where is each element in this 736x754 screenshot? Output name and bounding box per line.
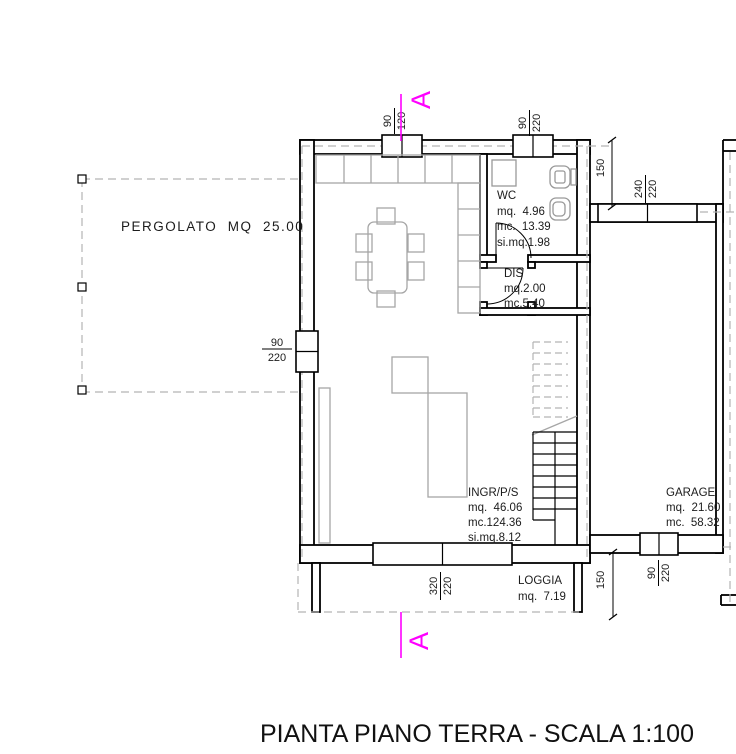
pergola-post [78,175,86,183]
section-line-AA: A A [401,91,436,658]
garage-label-block: GARAGE mq. 21.60 mc. 58.32 [666,487,720,529]
shower-sink [492,160,516,186]
stairs-lower-flight [533,432,577,545]
num: 320 [428,577,440,595]
sofa-corner [392,357,428,393]
svg-text:mq.2.00: mq.2.00 [504,283,546,295]
svg-text:mq. 46.06: mq. 46.06 [468,502,522,514]
svg-text:GARAGE: GARAGE [666,487,716,499]
num: 90 [271,337,283,349]
chair [356,262,372,280]
pergolato-outline [78,175,300,394]
staircase [532,342,577,545]
num: 240 [633,180,645,198]
den: 220 [647,180,659,198]
shelf-unit [319,388,330,543]
label-240-220: 240 220 [633,175,659,203]
dim-150-top [608,137,616,210]
svg-text:mc. 58.32: mc. 58.32 [666,517,720,529]
pergola-post [78,283,86,291]
num: 90 [382,115,394,127]
label-dim-150-bottom: 150 [595,571,607,589]
garage-back-door-90x220 [640,533,678,555]
svg-text:WC: WC [497,190,516,202]
kitchen-units [316,155,480,313]
svg-text:150: 150 [595,159,607,177]
toilet [550,166,576,188]
opening-labels: 90 120 90 220 90 220 320 220 240 220 90 … [262,108,672,600]
sofa-body [428,393,467,497]
svg-text:mq. 4.96: mq. 4.96 [497,206,545,218]
loggia-label-block: LOGGIA mq. 7.19 [518,575,566,603]
svg-text:mq. 21.60: mq. 21.60 [666,502,720,514]
dis-label-block: DIS mq.2.00 mc.5.40 [504,268,546,310]
svg-text:si.mq.8.12: si.mq.8.12 [468,532,521,544]
label-90-220-top: 90 220 [517,110,543,136]
svg-text:mc. 13.39: mc. 13.39 [497,221,551,233]
ingr-label-block: INGR/P/S mq. 46.06 mc.124.36 si.mq.8.12 [468,487,522,544]
wc-label-block: WC mq. 4.96 mc. 13.39 si.mq.1.98 [497,190,551,249]
section-mark-bottom: A [404,632,434,650]
bidet [550,198,570,220]
den: 220 [268,352,286,364]
chair [356,234,372,252]
living-furniture [319,357,467,543]
stairs-upper-flight-dashed [532,342,577,435]
label-90-220-garage: 90 220 [646,560,672,586]
label-90-220-left: 90 220 [262,337,292,364]
den: 220 [531,114,543,132]
den: 220 [442,577,454,595]
chair [408,234,424,252]
den: 120 [396,112,408,130]
svg-text:si.mq.1.98: si.mq.1.98 [497,237,550,249]
chair [408,262,424,280]
floor-plan-sheet: 90 120 90 220 90 220 320 220 240 220 90 … [0,0,736,754]
label-320-220: 320 220 [428,572,454,600]
pergola-post [78,386,86,394]
window-loggia-320x220 [373,543,512,565]
svg-text:mc.124.36: mc.124.36 [468,517,522,529]
den: 220 [660,564,672,582]
sheet-title: PIANTA PIANO TERRA - SCALA 1:100 [260,720,694,748]
svg-text:LOGGIA: LOGGIA [518,575,562,587]
svg-text:mc.5.40: mc.5.40 [504,298,545,310]
floor-plan-drawing: 90 120 90 220 90 220 320 220 240 220 90 … [0,0,736,754]
num: 90 [646,567,658,579]
dim-150-bottom [609,549,617,620]
label-dim-150-top: 150 [595,159,607,177]
window-90x220 [513,135,553,157]
dining-table-and-chairs [356,208,424,307]
door-left-90x220 [296,331,318,372]
svg-text:mq. 7.19: mq. 7.19 [518,591,566,603]
svg-text:DIS: DIS [504,268,524,280]
label-90-120: 90 120 [382,108,408,134]
svg-text:INGR/P/S: INGR/P/S [468,487,519,499]
pergolato-label: PERGOLATO MQ 25.00 [121,219,304,234]
num: 90 [517,117,529,129]
window-90x120 [382,135,422,157]
section-mark-top: A [406,91,436,109]
svg-text:150: 150 [595,571,607,589]
